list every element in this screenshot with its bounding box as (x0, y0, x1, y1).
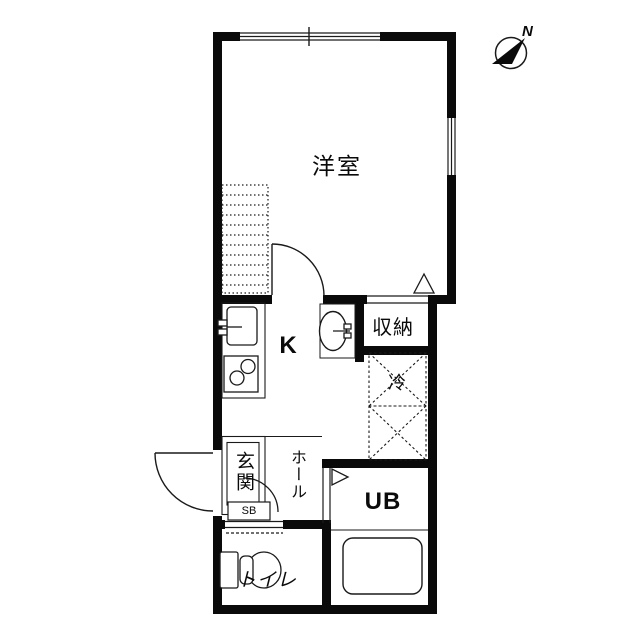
label-shoe-box: SB (233, 505, 265, 517)
door-unit-bath-marker (332, 469, 348, 485)
door-western-room (272, 244, 324, 296)
window-top (240, 27, 380, 46)
stove-icon (224, 356, 258, 392)
door-entrance (155, 453, 213, 511)
compass (492, 38, 527, 69)
label-storage: 収納 (352, 311, 434, 340)
wall-toilet-top-left (213, 520, 225, 529)
label-refrigerator: 冷 (377, 369, 417, 395)
door-unit-bath (323, 468, 348, 523)
label-north: N (522, 23, 533, 40)
north-arrow-icon (492, 38, 525, 64)
floor-plan: 洋室 K 収納 冷 玄関 ホール SB UB トイレ N (0, 0, 640, 639)
wall-mid-right (428, 295, 456, 304)
bathtub-icon (343, 538, 422, 594)
floor-plan-drawing (0, 0, 640, 639)
sink-faucet-icon (218, 320, 227, 326)
label-unit-bath: UB (353, 488, 413, 516)
wall-left-upper (213, 41, 222, 450)
stairs (222, 185, 268, 293)
wall-toilet-top-right (283, 520, 331, 529)
door-toilet (225, 522, 283, 534)
wall-right-lower (428, 295, 437, 614)
door-closet (367, 274, 434, 303)
label-kitchen: K (268, 332, 308, 360)
label-toilet: トイレ (227, 565, 307, 592)
label-entrance: 玄関 (230, 451, 257, 493)
washbasin-icon (320, 304, 356, 358)
window-right (447, 118, 456, 175)
washbasin-faucet-icon (344, 324, 351, 329)
wall-ub-left (322, 523, 331, 614)
label-western-room: 洋室 (287, 147, 387, 181)
label-hall: ホール (284, 449, 308, 500)
door-closet-marker (414, 274, 434, 293)
sink-icon (218, 307, 257, 345)
